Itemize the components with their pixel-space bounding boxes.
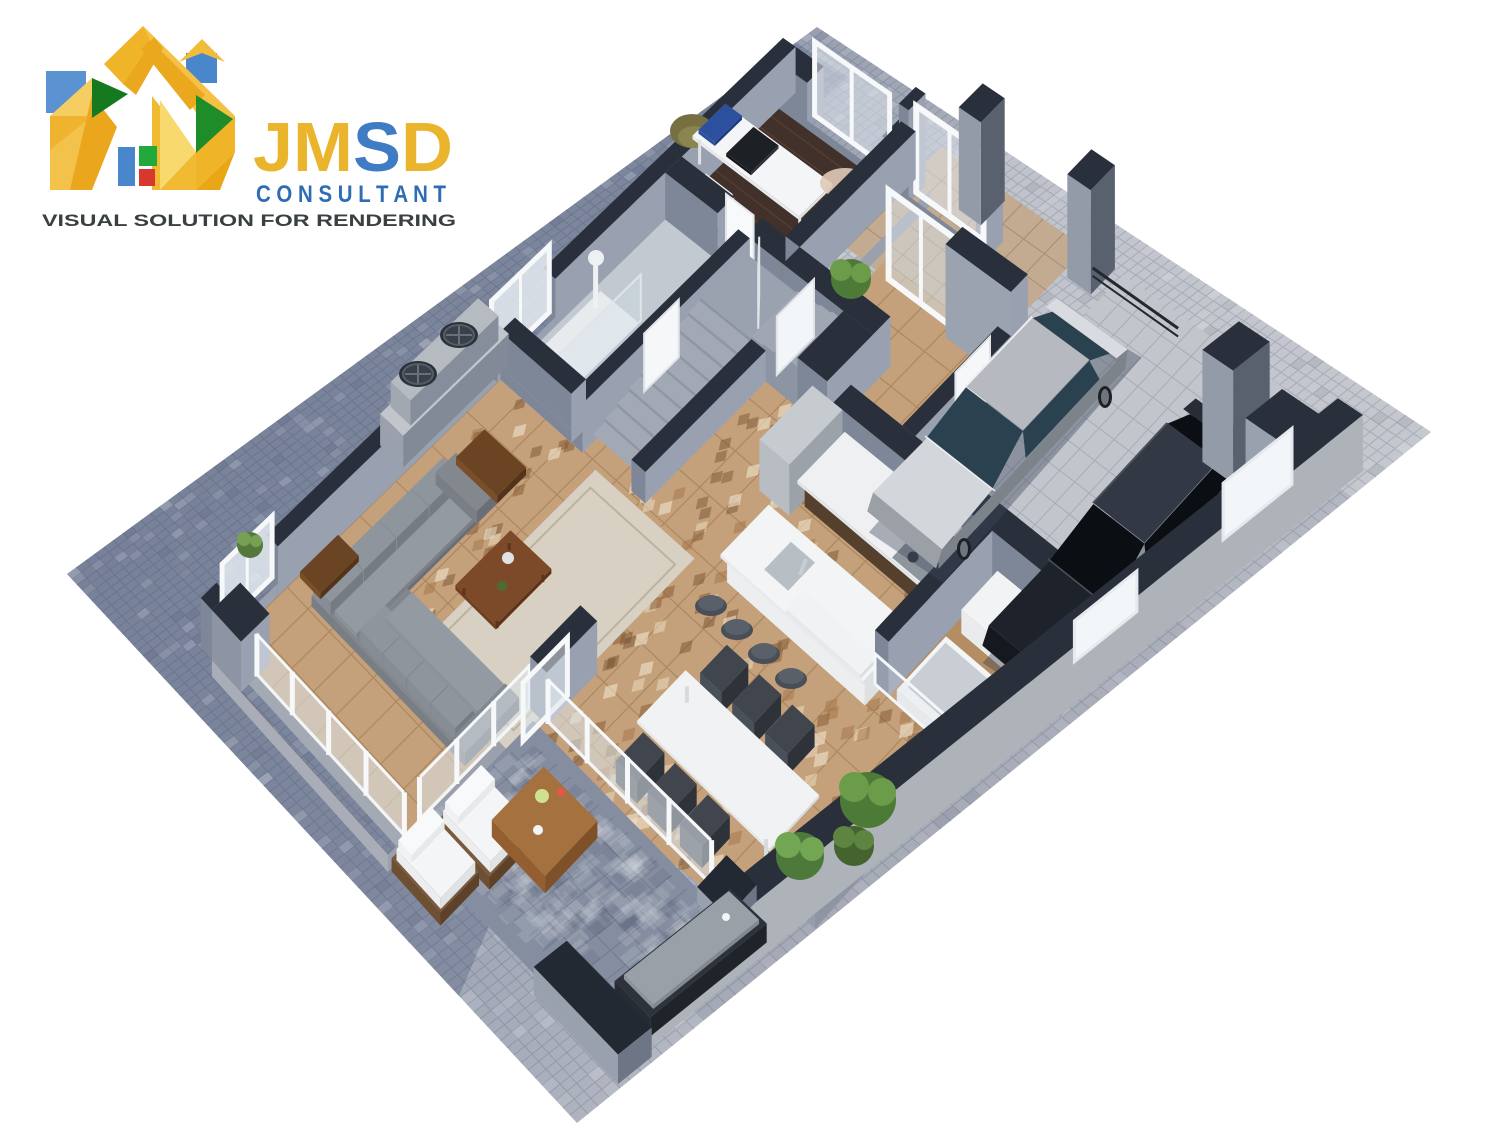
svg-text:JMSD: JMSD (253, 108, 453, 186)
svg-text:C O N S U L T A N T: C O N S U L T A N T (256, 181, 446, 208)
svg-text:VISUAL SOLUTION FOR RENDERING: VISUAL SOLUTION FOR RENDERING (42, 211, 456, 230)
